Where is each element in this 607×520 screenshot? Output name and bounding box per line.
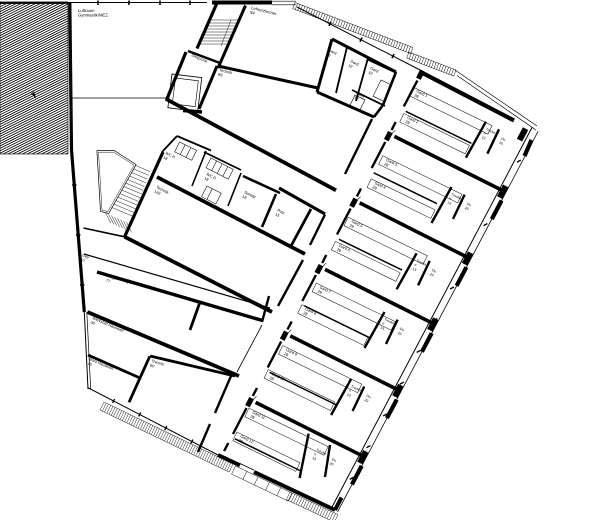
svg-text:Gymnastik/MEZ: Gymnastik/MEZ <box>78 13 108 18</box>
